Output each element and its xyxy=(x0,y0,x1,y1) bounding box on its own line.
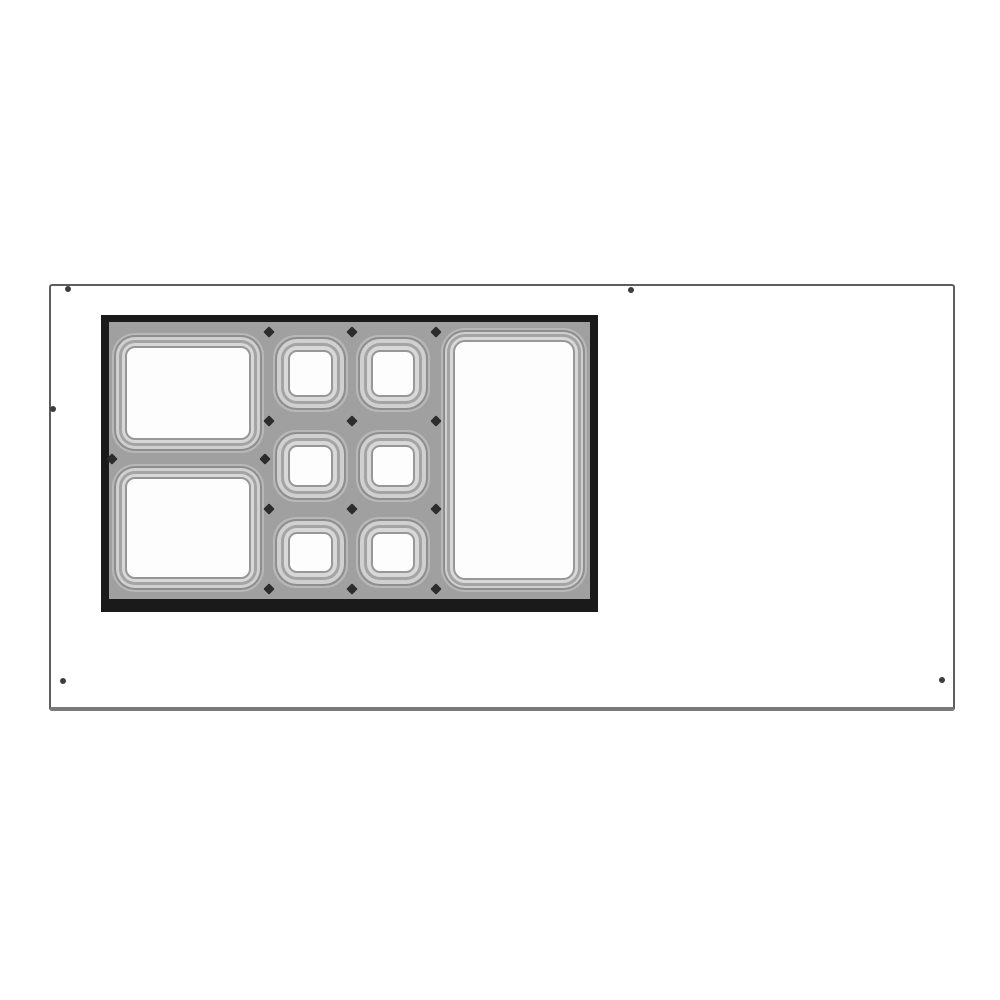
pan-small-row1-col2 xyxy=(371,350,415,397)
pan-small-row2-col2 xyxy=(371,445,415,487)
flange-junction-mark-3 xyxy=(430,326,441,337)
flange-junction-mark-9 xyxy=(430,503,441,514)
pan-assembly-frame xyxy=(101,315,598,612)
pan-large-right xyxy=(453,340,575,580)
flange-junction-mark-8 xyxy=(346,503,357,514)
flange-junction-mark-2 xyxy=(346,326,357,337)
drawing-canvas xyxy=(0,0,1000,1000)
flange-junction-mark-4 xyxy=(263,415,274,426)
pan-large-bottom-left xyxy=(125,477,251,579)
pan-small-row3-col2 xyxy=(371,532,415,573)
flange-junction-mark-6 xyxy=(430,415,441,426)
flange-junction-mark-5 xyxy=(346,415,357,426)
flange-junction-mark-10 xyxy=(263,583,274,594)
screw-hole-2 xyxy=(628,287,634,293)
flange-junction-mark-1 xyxy=(263,326,274,337)
pan-small-row1-col1 xyxy=(288,350,333,397)
screw-hole-5 xyxy=(939,677,945,683)
flange-junction-mark-7 xyxy=(263,503,274,514)
pan-small-row3-col1 xyxy=(288,532,333,573)
screw-hole-4 xyxy=(60,678,66,684)
screw-hole-1 xyxy=(65,286,71,292)
flange-junction-mark-12 xyxy=(430,583,441,594)
pan-large-top-left xyxy=(125,346,251,440)
pan-small-row2-col1 xyxy=(288,445,333,487)
screw-hole-3 xyxy=(50,406,56,412)
flange-junction-mark-11 xyxy=(346,583,357,594)
flange-junction-mark-13 xyxy=(106,453,117,464)
flange-junction-mark-14 xyxy=(259,453,270,464)
